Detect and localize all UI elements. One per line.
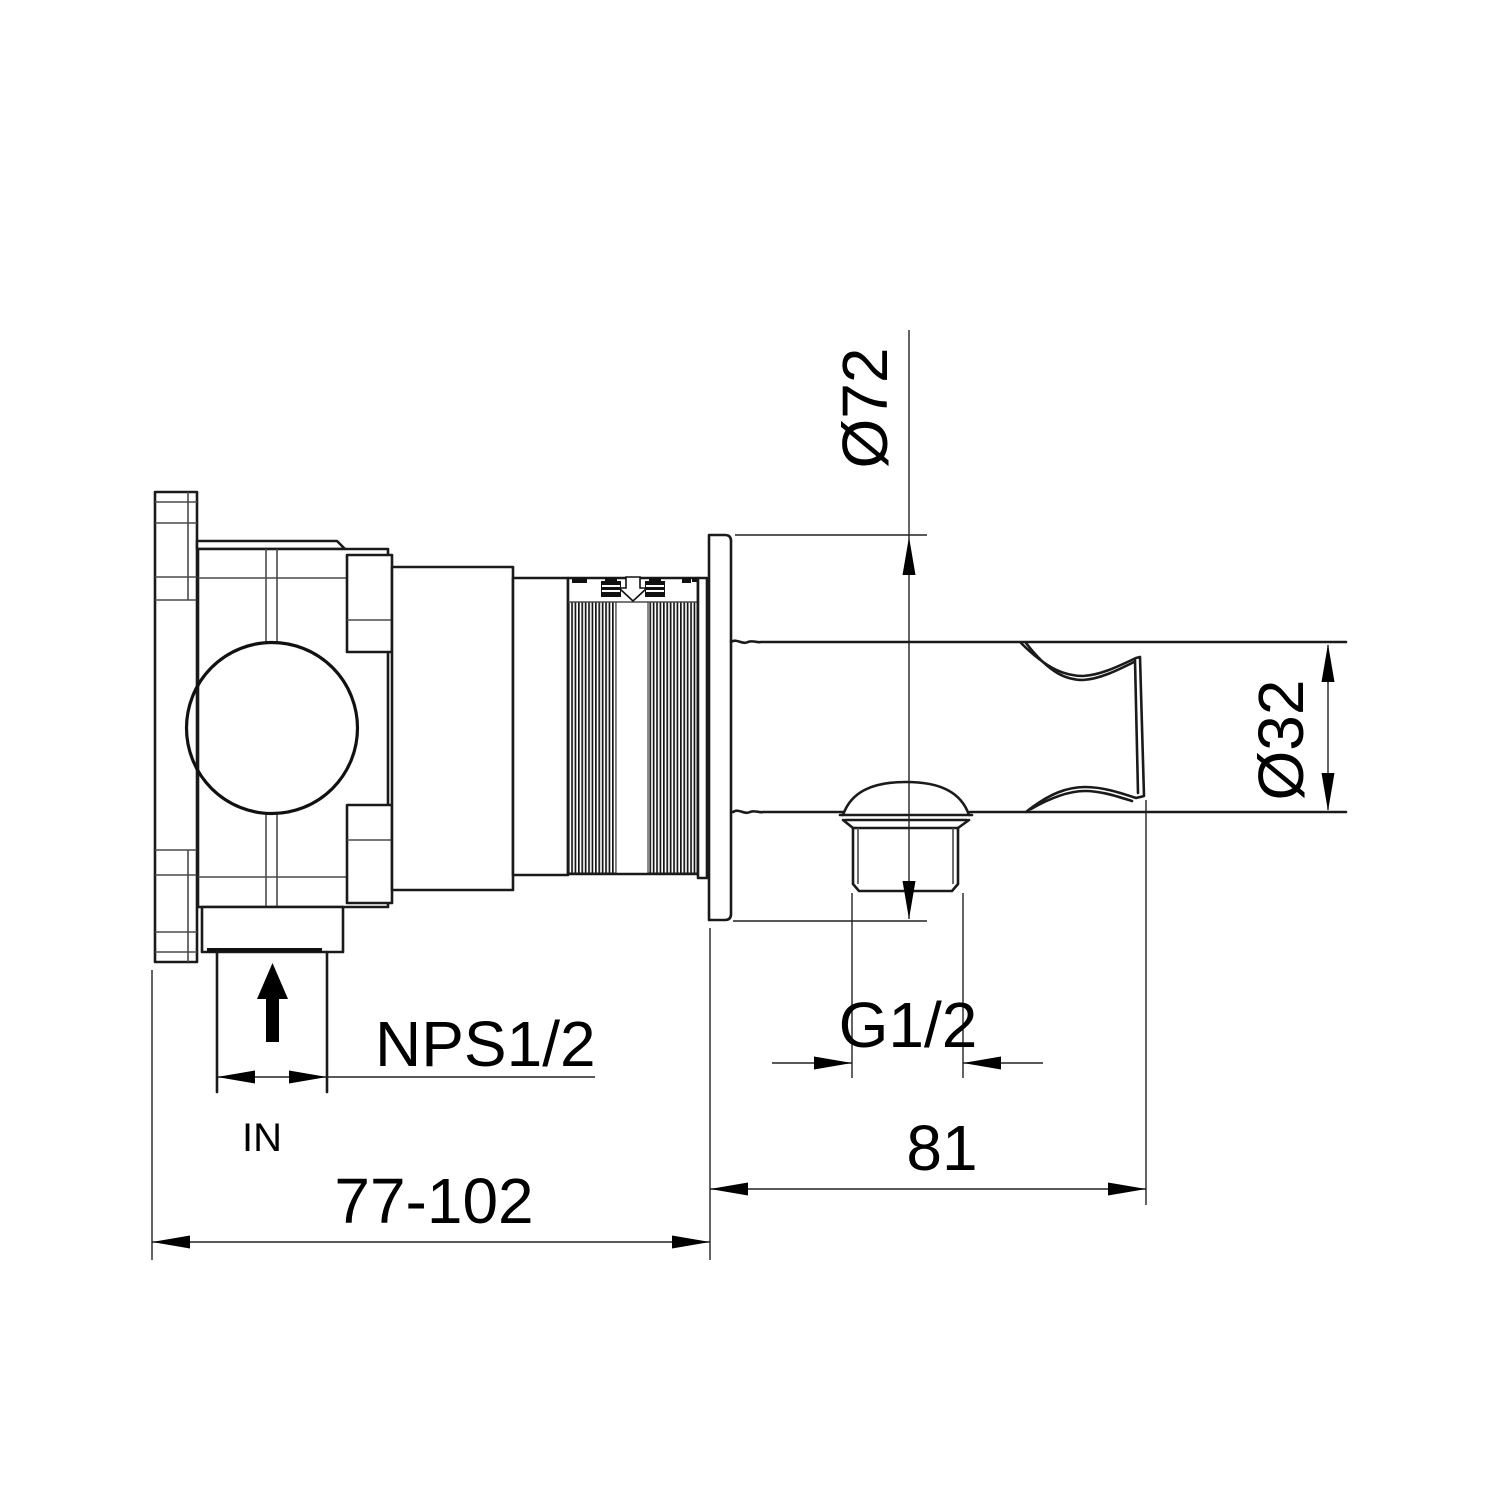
nps-label: NPS1/2 [375,1008,596,1080]
thread-hatch-left [569,602,616,873]
d72-label: Ø72 [829,348,901,469]
nps-arrow-right [289,1071,327,1084]
clip-dash-icon [682,578,691,583]
upper-mounting-tab [347,555,392,652]
holder-inner-top-curve [1026,643,1134,680]
valve-collar [392,567,513,890]
technical-drawing: Ø72 Ø32 G1/2 NPS1/2 IN 81 77-102 [0,0,1500,1500]
threaded-sleeve [568,577,707,878]
thread-hatch-right [648,602,697,873]
nipple-thread-relief [858,828,953,884]
adapter-ring [513,578,568,875]
clip-dash-icon [572,578,587,583]
dimension-holder-diameter: Ø32 [1245,644,1335,811]
inlet-block [202,907,343,952]
holder-outer-profile [1021,643,1144,812]
d72-arrow-up [903,537,916,575]
wall-plate [709,535,731,920]
handshower-holder [1021,643,1144,812]
d72-extension-lines [733,535,927,921]
range-label: 77-102 [334,1165,533,1237]
sleeve-end-cap [698,578,707,878]
d72-arrow-down [903,881,916,919]
dimension-plate-diameter: Ø72 [733,330,927,921]
d32-arrow-down [1322,773,1335,811]
nps-arrow-left [217,1071,255,1084]
d32-arrow-up [1322,644,1335,682]
in-label: IN [242,1116,282,1160]
inlet-connection [202,907,343,1092]
dim81-arrow-left [710,1183,748,1196]
arm-top-edge [731,641,1346,643]
range-arrow-left [152,1236,190,1249]
up-arrow-icon [257,963,288,1042]
holder-inner-edge [1135,660,1138,793]
dim81-arrow-right [1108,1183,1146,1196]
valve-body [187,549,569,907]
bracket-backplate [155,492,197,962]
holder-inner-bottom-curve [1031,791,1132,809]
dim81-label: 81 [906,1112,977,1184]
nipple-dome [843,782,969,815]
lower-mounting-tab [347,805,392,903]
nipple-collar [840,815,972,820]
bracket-slot-lines [155,502,197,952]
g12-label: G1/2 [839,989,978,1061]
range-arrow-right [672,1236,710,1249]
d32-label: Ø32 [1245,680,1317,801]
arm-bottom-edge [733,811,1346,813]
drawing-canvas: Ø72 Ø32 G1/2 NPS1/2 IN 81 77-102 [0,0,1500,1500]
outlet-nipple [840,782,972,891]
